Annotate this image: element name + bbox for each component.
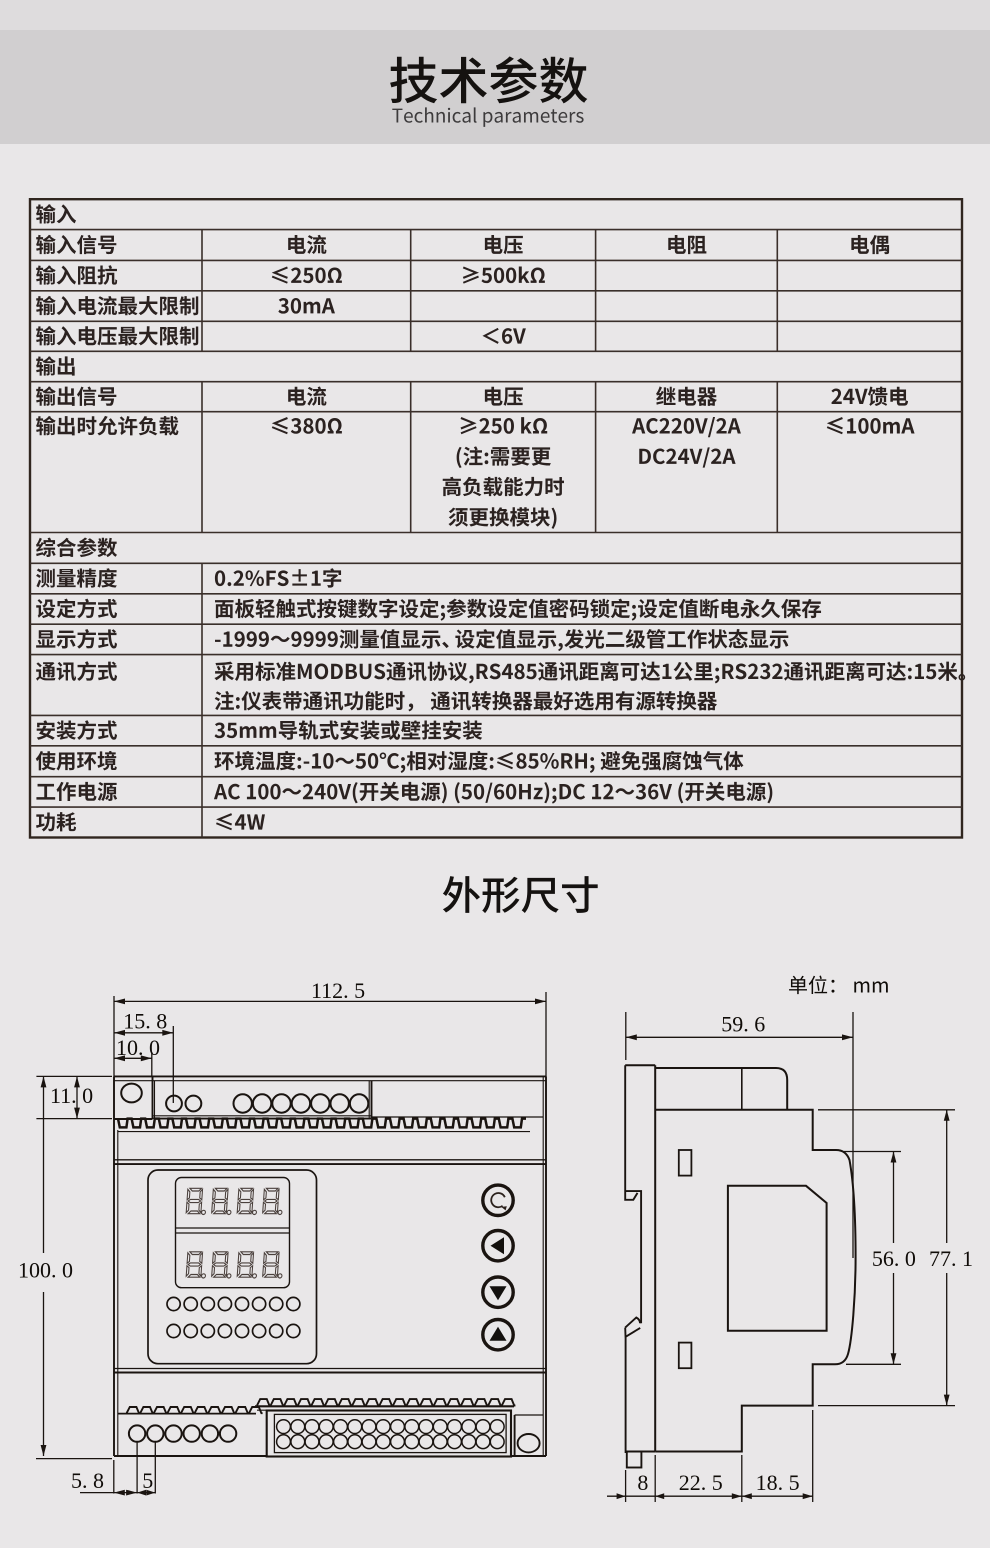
svg-text:5: 5 <box>142 1468 153 1493</box>
svg-text:18. 5: 18. 5 <box>756 1470 800 1495</box>
svg-text:5. 8: 5. 8 <box>71 1468 104 1493</box>
svg-text:59. 6: 59. 6 <box>721 1012 765 1037</box>
svg-text:10. 0: 10. 0 <box>116 1035 160 1060</box>
svg-text:11. 0: 11. 0 <box>50 1083 93 1108</box>
svg-text:112. 5: 112. 5 <box>311 978 365 1003</box>
svg-text:15. 8: 15. 8 <box>123 1008 167 1033</box>
svg-text:56. 0: 56. 0 <box>872 1246 916 1271</box>
svg-text:100. 0: 100. 0 <box>18 1258 73 1283</box>
svg-text:22. 5: 22. 5 <box>679 1470 723 1495</box>
svg-text:77. 1: 77. 1 <box>929 1246 973 1271</box>
svg-text:8: 8 <box>637 1470 648 1495</box>
